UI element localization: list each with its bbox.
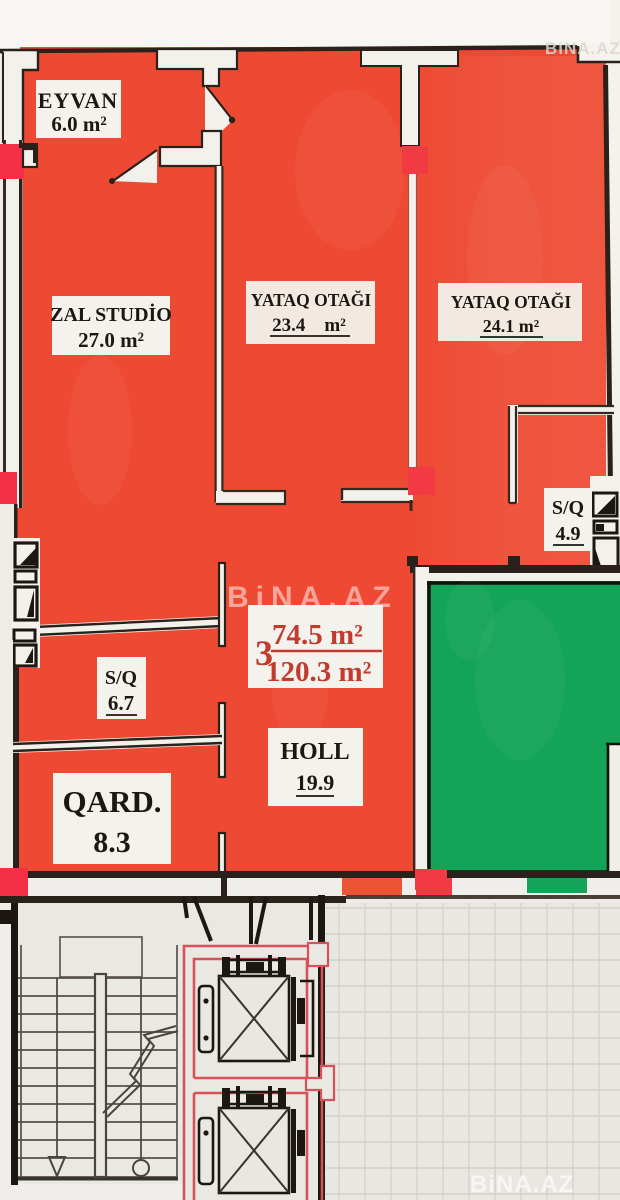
svg-text:27.0 m²: 27.0 m²: [78, 328, 144, 352]
svg-text:S/Q: S/Q: [105, 667, 137, 689]
svg-text:YATAQ OTAĞI: YATAQ OTAĞI: [451, 292, 572, 312]
svg-text:BiNA.AZ: BiNA.AZ: [470, 1171, 574, 1198]
svg-text:6.7: 6.7: [108, 691, 134, 715]
svg-text:4.9: 4.9: [556, 523, 581, 545]
svg-text:YATAQ OTAĞI: YATAQ OTAĞI: [251, 290, 372, 310]
svg-text:74.5 m²: 74.5 m²: [272, 619, 363, 651]
svg-text:BiNA.AZ: BiNA.AZ: [545, 39, 620, 58]
svg-text:QARD.: QARD.: [62, 784, 161, 819]
svg-text:24.1 m²: 24.1 m²: [483, 316, 539, 336]
svg-text:ZAL STUDİO: ZAL STUDİO: [50, 302, 172, 326]
svg-text:6.0 m²: 6.0 m²: [51, 112, 106, 136]
svg-text:HOLL: HOLL: [280, 739, 349, 765]
svg-text:23.4 m²: 23.4 m²: [272, 315, 346, 336]
svg-text:19.9: 19.9: [296, 770, 335, 795]
svg-text:BiNA.AZ: BiNA.AZ: [227, 581, 398, 614]
svg-text:EYVAN: EYVAN: [38, 88, 118, 113]
svg-text:S/Q: S/Q: [552, 497, 584, 519]
svg-text:120.3 m²: 120.3 m²: [266, 656, 372, 688]
svg-text:8.3: 8.3: [93, 826, 131, 859]
